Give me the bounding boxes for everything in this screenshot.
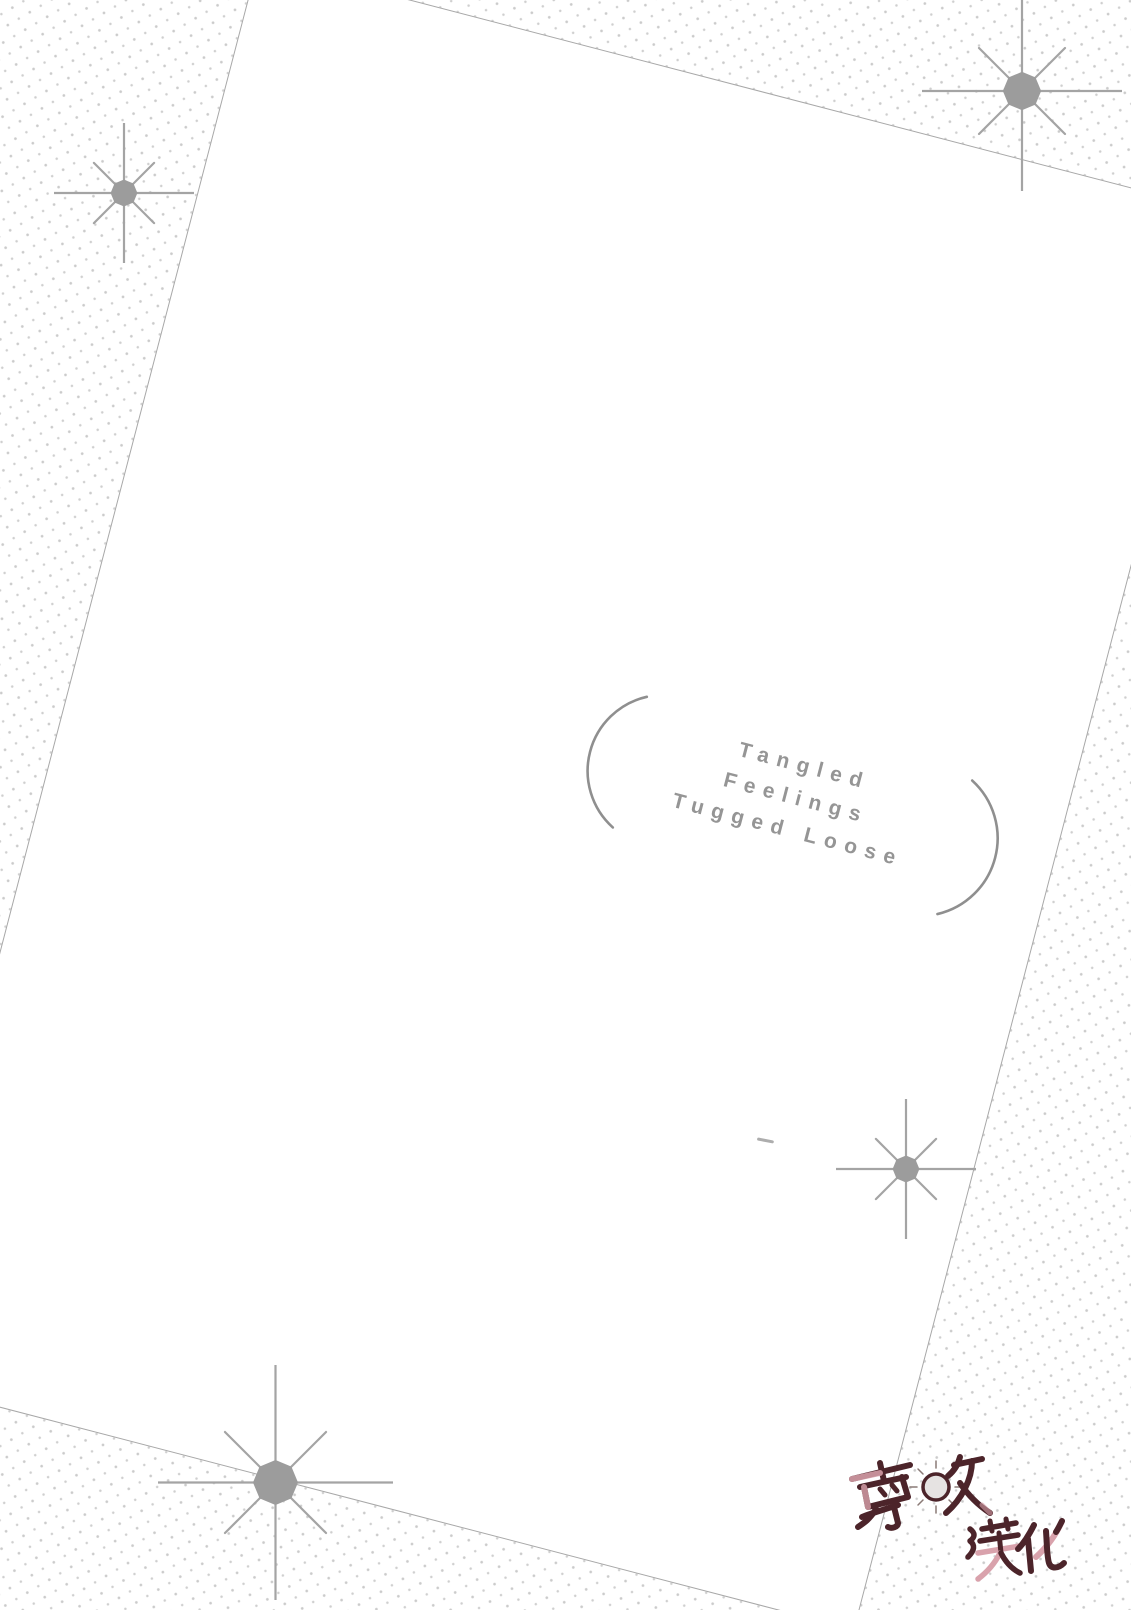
translator-watermark [820,1435,1080,1610]
page-canvas: Tangled Feelings Tugged Loose [0,0,1131,1610]
sparkle-icon-top-left [54,123,194,263]
watermark-sparkle-gem [923,1474,949,1500]
watermark-character-wu [852,1463,910,1528]
sparkle-icon-top-right [922,0,1122,191]
watermark-character-hua [1018,1521,1064,1571]
sparkle-icon-middle-right [836,1099,976,1239]
sparkle-icon-bottom-left [158,1365,393,1600]
watermark-character-han [968,1519,1020,1579]
watermark-character-chui [910,1457,990,1513]
